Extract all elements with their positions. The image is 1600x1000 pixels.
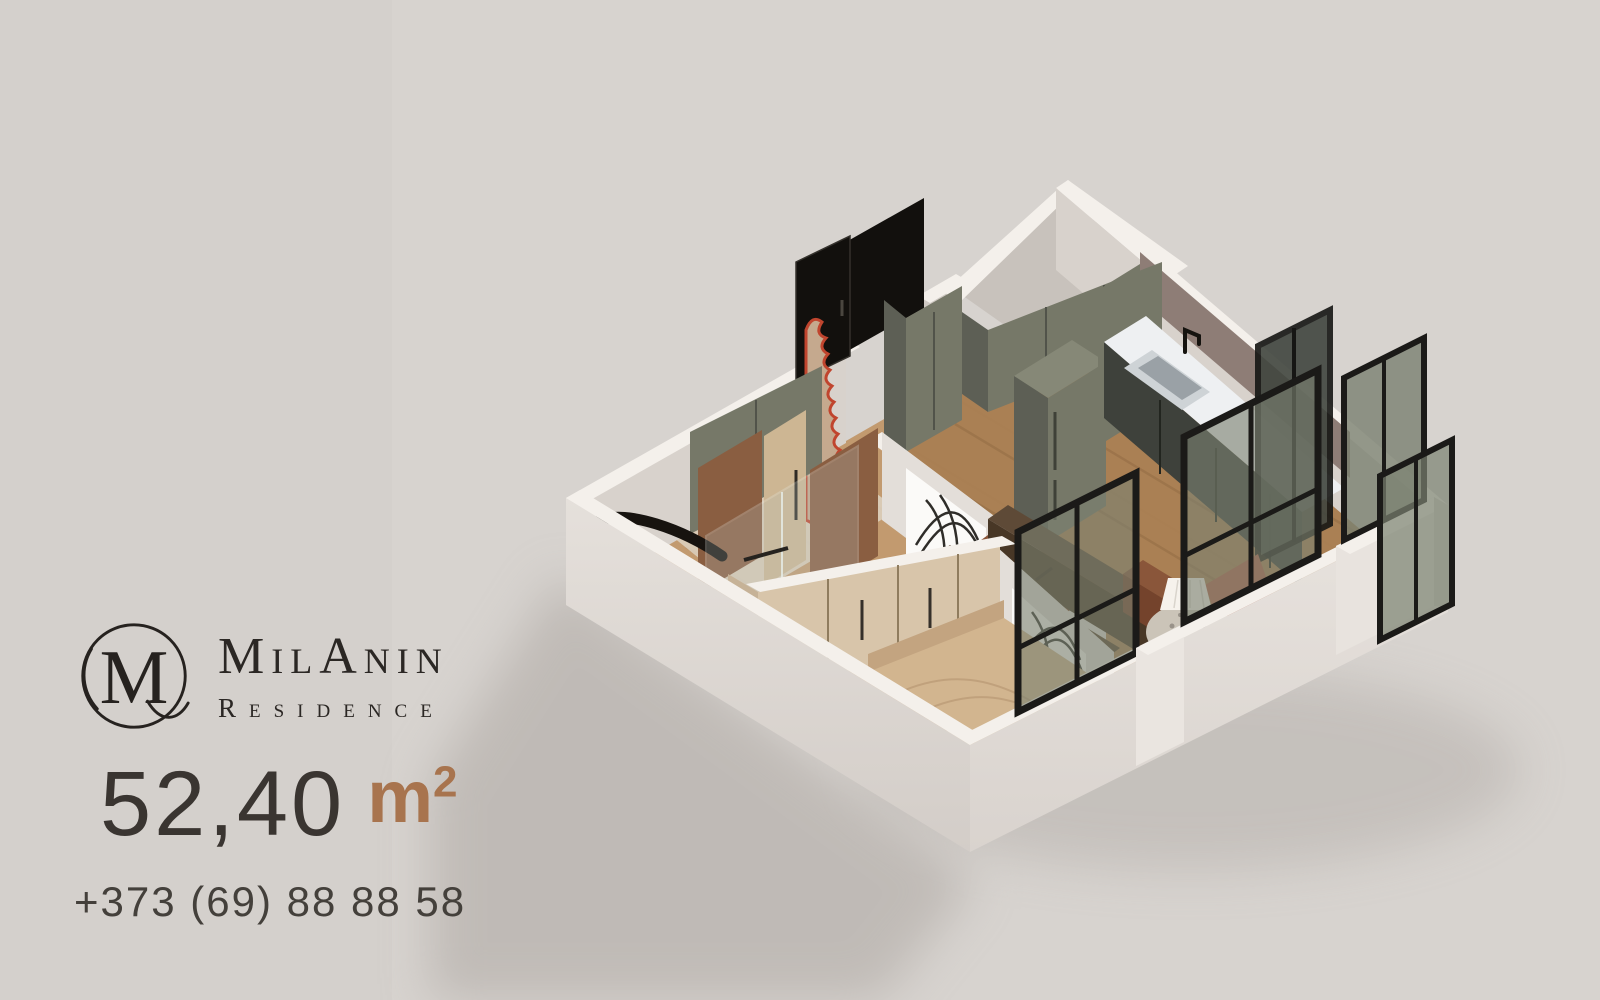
area-unit-sup: 2: [433, 757, 457, 806]
brand-block: M MilAnin Residence: [76, 618, 449, 734]
logo-letter: M: [100, 634, 169, 720]
area-unit: m2: [367, 760, 457, 834]
east-corner-window: [1380, 440, 1452, 640]
logo-swash-left: [84, 649, 97, 709]
area-unit-letter: m: [367, 755, 433, 838]
area-block: 52,40 m2: [100, 758, 458, 850]
area-value: 52,40: [100, 758, 345, 850]
page: { "brand": { "logo_letter": "M", "name":…: [0, 0, 1600, 1000]
brand-name: MilAnin: [218, 631, 449, 683]
phone-number: +373 (69) 88 88 58: [74, 878, 466, 926]
brand-logo: M: [76, 618, 192, 734]
brand-subtitle: Residence: [218, 695, 449, 722]
